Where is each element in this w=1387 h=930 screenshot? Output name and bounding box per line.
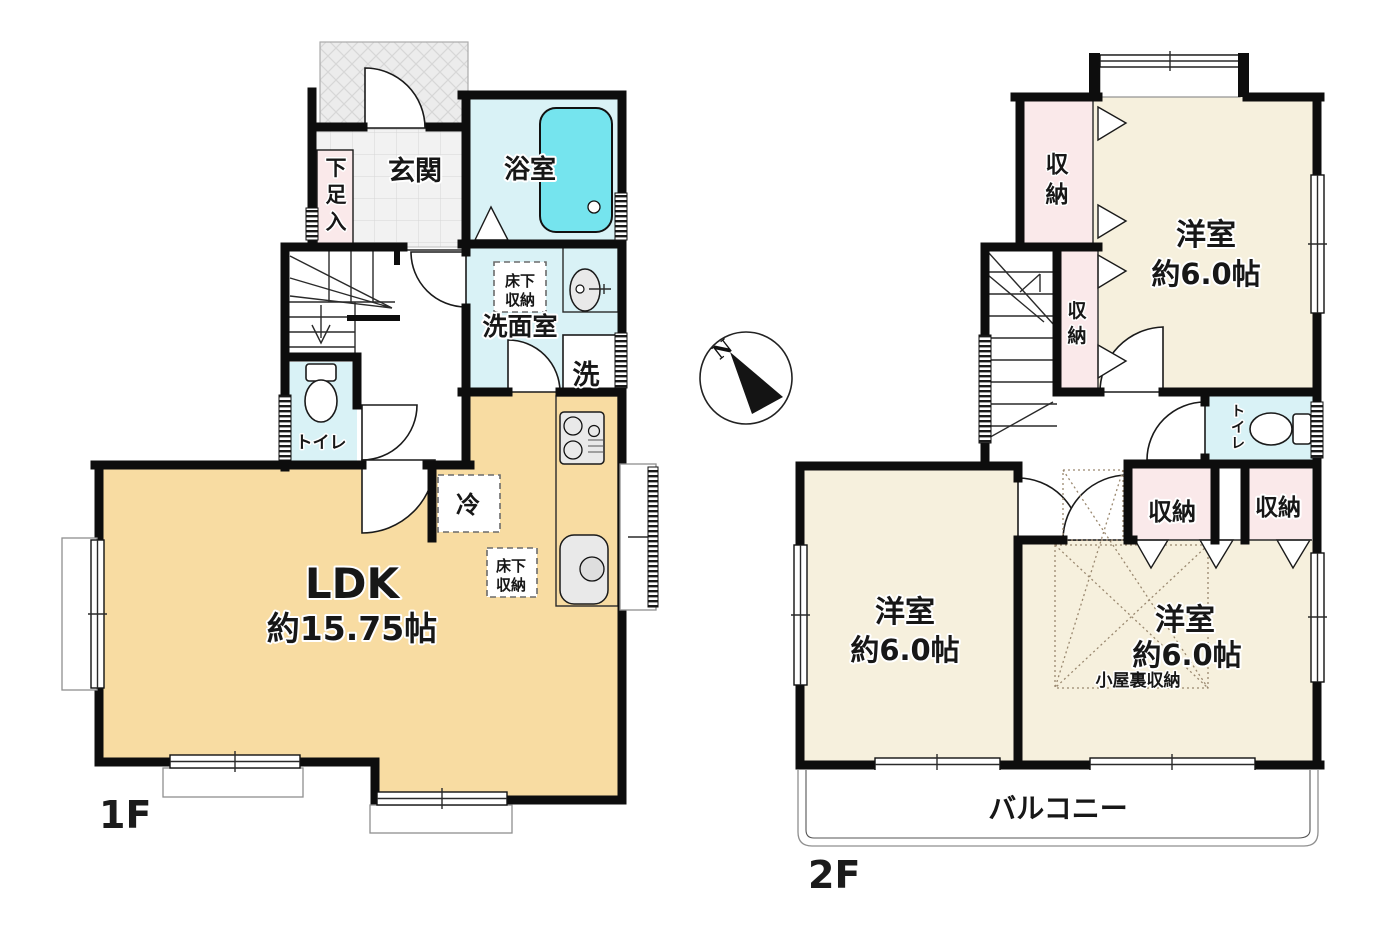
- vanity-faucet-icon: [576, 285, 584, 293]
- underfloor2-label: 収納: [496, 576, 526, 594]
- room-north-name: 洋室: [1176, 218, 1236, 253]
- closet-s1-label: 収納: [1148, 498, 1196, 526]
- attic-storage-label: 小屋裏収納: [1096, 670, 1181, 691]
- toilet2-tank: [1293, 414, 1311, 444]
- toilet1-label: トイレ: [296, 433, 347, 453]
- toilet1-door: [362, 405, 417, 460]
- floor2-label: 2F: [808, 853, 860, 897]
- washroom-label: 洗面室: [482, 312, 557, 341]
- closet-s2-label: 収納: [1255, 494, 1301, 521]
- vanity-sink: [570, 269, 600, 311]
- shoebox-label: 下足入: [326, 156, 347, 234]
- shutter-stairs2: [979, 335, 991, 443]
- room-north-size: 約6.0帖: [1151, 257, 1260, 291]
- genkan-label: 玄関: [388, 155, 442, 187]
- terrace-step-1: [163, 768, 303, 797]
- floor-plan-page: 玄関 下足入 浴室 床下 収納 洗面室 洗 トイレ LDK 約15.75帖 冷 …: [0, 0, 1387, 930]
- floor-plan-drawing: 玄関 下足入 浴室 床下 収納 洗面室 洗 トイレ LDK 約15.75帖 冷 …: [0, 0, 1387, 930]
- shutter-washroom: [615, 333, 627, 388]
- wall-post: [1089, 53, 1100, 97]
- ldk-name: LDK: [305, 559, 401, 608]
- compass: N: [700, 332, 792, 424]
- kitchen-sink-bowl: [580, 557, 604, 581]
- room-se-size: 約6.0帖: [1132, 638, 1241, 672]
- stairs-1f: [285, 249, 395, 357]
- shutter-shoebox: [306, 208, 318, 240]
- bath-label: 浴室: [504, 154, 556, 185]
- washer-label: 洗: [573, 360, 600, 391]
- washroom-door: [411, 252, 466, 307]
- balcony-label: バルコニー: [988, 792, 1127, 825]
- ldk-size: 約15.75帖: [267, 609, 437, 648]
- room-sw-name: 洋室: [875, 595, 935, 630]
- toilet2-bowl: [1250, 413, 1292, 445]
- underfloor1-label: 床下: [505, 272, 535, 290]
- toilet2-label: トイレ: [1231, 404, 1245, 452]
- toilet1-bowl: [305, 380, 337, 422]
- room-sw-size: 約6.0帖: [850, 633, 959, 667]
- stairs-2f: [985, 252, 1057, 440]
- floor-1: 玄関 下足入 浴室 床下 収納 洗面室 洗 トイレ LDK 約15.75帖 冷 …: [62, 42, 658, 837]
- floor-2: 洋室 約6.0帖 収納 収納 トイレ 収納 収納 洋室 約6.0帖 洋室 約6.…: [791, 51, 1327, 897]
- underfloor1-label: 収納: [505, 291, 535, 309]
- shutter-toilet2: [1311, 402, 1323, 458]
- underfloor2-label: 床下: [496, 557, 526, 575]
- room-se-name: 洋室: [1155, 603, 1215, 638]
- wall-post: [1238, 53, 1249, 97]
- toilet2-door: [1147, 402, 1205, 460]
- toilet1-tank: [306, 364, 336, 381]
- floor1-label: 1F: [99, 793, 151, 837]
- bathtub-drain: [588, 201, 600, 213]
- shutter-kitchen: [648, 467, 658, 607]
- fridge-label: 冷: [456, 491, 480, 519]
- terrace-step-2: [370, 805, 512, 833]
- shutter-toilet1: [279, 395, 291, 460]
- shutter-bath: [615, 193, 627, 240]
